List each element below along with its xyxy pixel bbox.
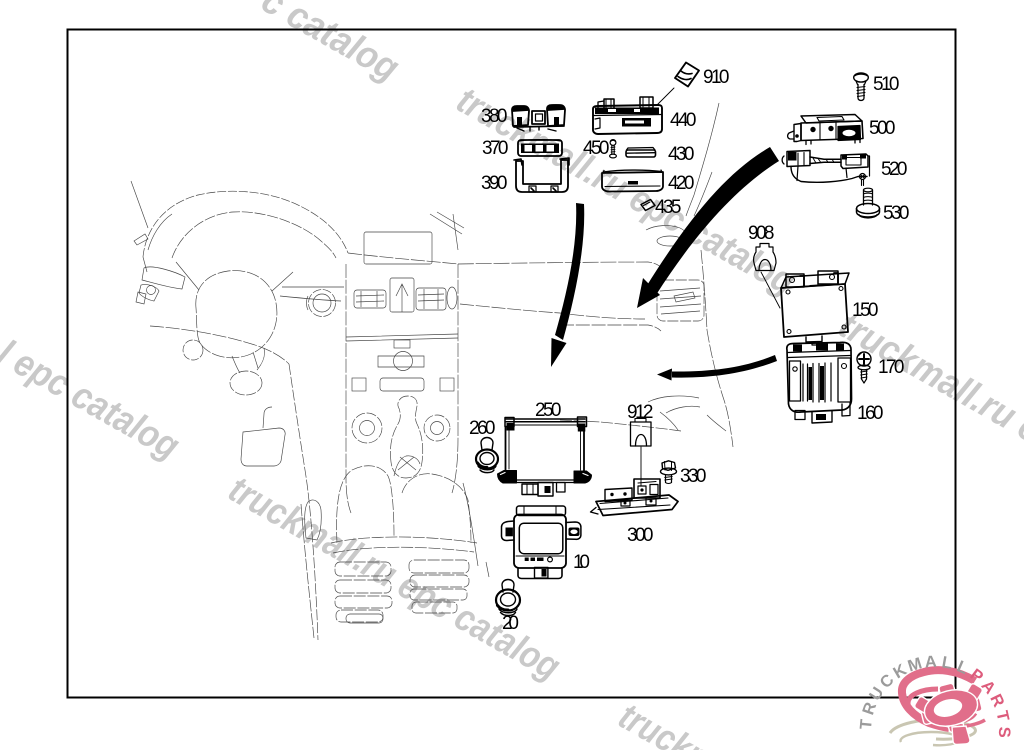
svg-text:908: 908 bbox=[748, 223, 775, 244]
svg-text:430: 430 bbox=[668, 144, 695, 165]
svg-text:150: 150 bbox=[852, 300, 879, 321]
svg-text:20: 20 bbox=[502, 613, 519, 634]
svg-text:10: 10 bbox=[573, 552, 590, 573]
svg-text:910: 910 bbox=[703, 67, 730, 88]
svg-text:250: 250 bbox=[535, 400, 562, 421]
svg-text:510: 510 bbox=[873, 74, 900, 95]
svg-text:380: 380 bbox=[481, 106, 508, 127]
svg-text:520: 520 bbox=[881, 159, 908, 180]
svg-text:170: 170 bbox=[878, 357, 905, 378]
svg-text:260: 260 bbox=[469, 418, 496, 439]
svg-text:S: S bbox=[995, 727, 1013, 738]
svg-text:A: A bbox=[924, 653, 937, 672]
svg-text:390: 390 bbox=[481, 173, 508, 194]
svg-text:450: 450 bbox=[583, 138, 610, 159]
svg-text:T: T bbox=[857, 719, 876, 731]
svg-text:530: 530 bbox=[883, 203, 910, 224]
svg-text:160: 160 bbox=[857, 403, 884, 424]
svg-text:912: 912 bbox=[627, 402, 654, 423]
svg-text:370: 370 bbox=[482, 138, 509, 159]
svg-text:435: 435 bbox=[655, 197, 682, 218]
svg-text:500: 500 bbox=[869, 118, 896, 139]
svg-text:420: 420 bbox=[668, 173, 695, 194]
svg-text:330: 330 bbox=[680, 466, 707, 487]
svg-text:300: 300 bbox=[627, 525, 654, 546]
svg-text:440: 440 bbox=[670, 110, 697, 131]
